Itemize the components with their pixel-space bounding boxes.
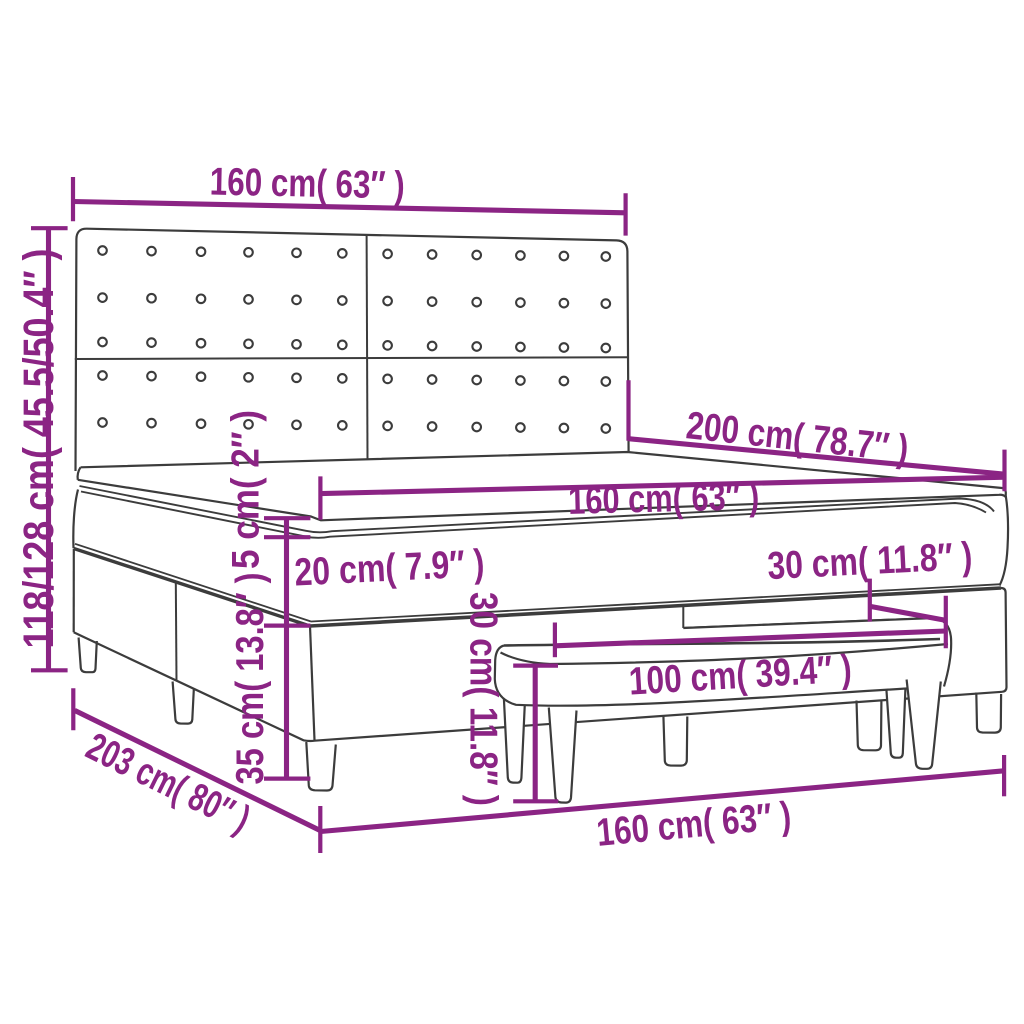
svg-text:5 cm( 2″ ): 5 cm( 2″ ) bbox=[225, 410, 268, 569]
svg-text:160 cm( 63″ ): 160 cm( 63″ ) bbox=[568, 475, 760, 523]
svg-text:35 cm( 13.8″ ): 35 cm( 13.8″ ) bbox=[229, 573, 272, 785]
svg-text:30 cm( 11.8″ ): 30 cm( 11.8″ ) bbox=[462, 592, 505, 806]
svg-text:118/128 cm( 45.5/50.4″ ): 118/128 cm( 45.5/50.4″ ) bbox=[15, 249, 63, 649]
svg-text:160 cm( 63″ ): 160 cm( 63″ ) bbox=[209, 161, 405, 208]
